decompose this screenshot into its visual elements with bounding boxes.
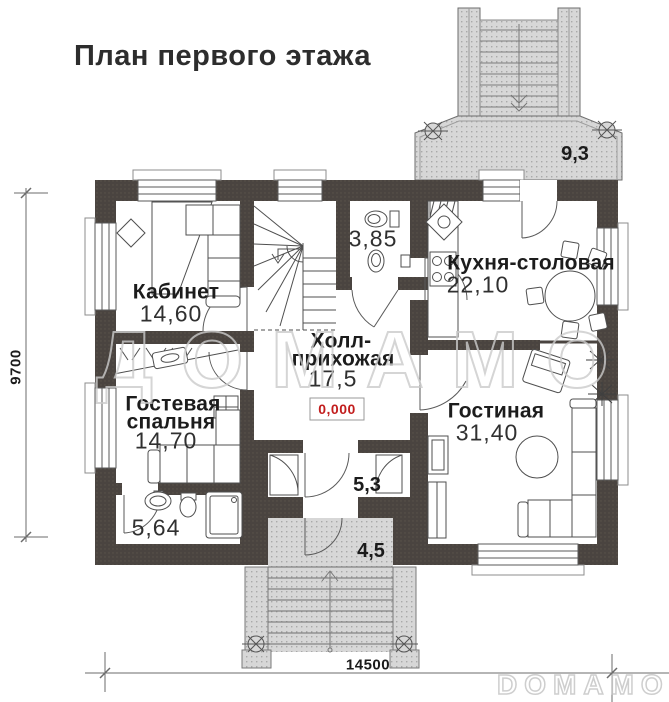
room-area-wc: 3,85 bbox=[349, 228, 398, 251]
room-area-guest-bedroom: 14,70 bbox=[135, 430, 198, 453]
room-area-bathroom: 5,64 bbox=[132, 517, 181, 540]
watermark-corner: DOMAMO bbox=[497, 669, 669, 701]
room-label-kitchen: Кухня-столовая bbox=[447, 253, 615, 274]
room-area-kitchen: 22,10 bbox=[447, 274, 510, 297]
vestibule-closets bbox=[270, 455, 402, 495]
staircase bbox=[254, 206, 336, 330]
floor-plan-page: План первого этажа Кабинет 14,60 Гостева… bbox=[0, 0, 669, 702]
room-area-porch: 4,5 bbox=[357, 541, 385, 561]
room-area-vestibule: 5,3 bbox=[353, 475, 381, 495]
room-area-living: 31,40 bbox=[456, 422, 519, 445]
watermark-center: ДОМАМО bbox=[96, 314, 637, 406]
room-label-office: Кабинет bbox=[133, 282, 219, 303]
dimension-left: 9700 bbox=[9, 349, 24, 384]
dimension-bottom: 14500 bbox=[346, 658, 390, 673]
room-area-terrace: 9,3 bbox=[561, 144, 589, 164]
page-title: План первого этажа bbox=[74, 40, 371, 73]
porch-area bbox=[242, 518, 419, 668]
terrace-area bbox=[415, 8, 622, 180]
